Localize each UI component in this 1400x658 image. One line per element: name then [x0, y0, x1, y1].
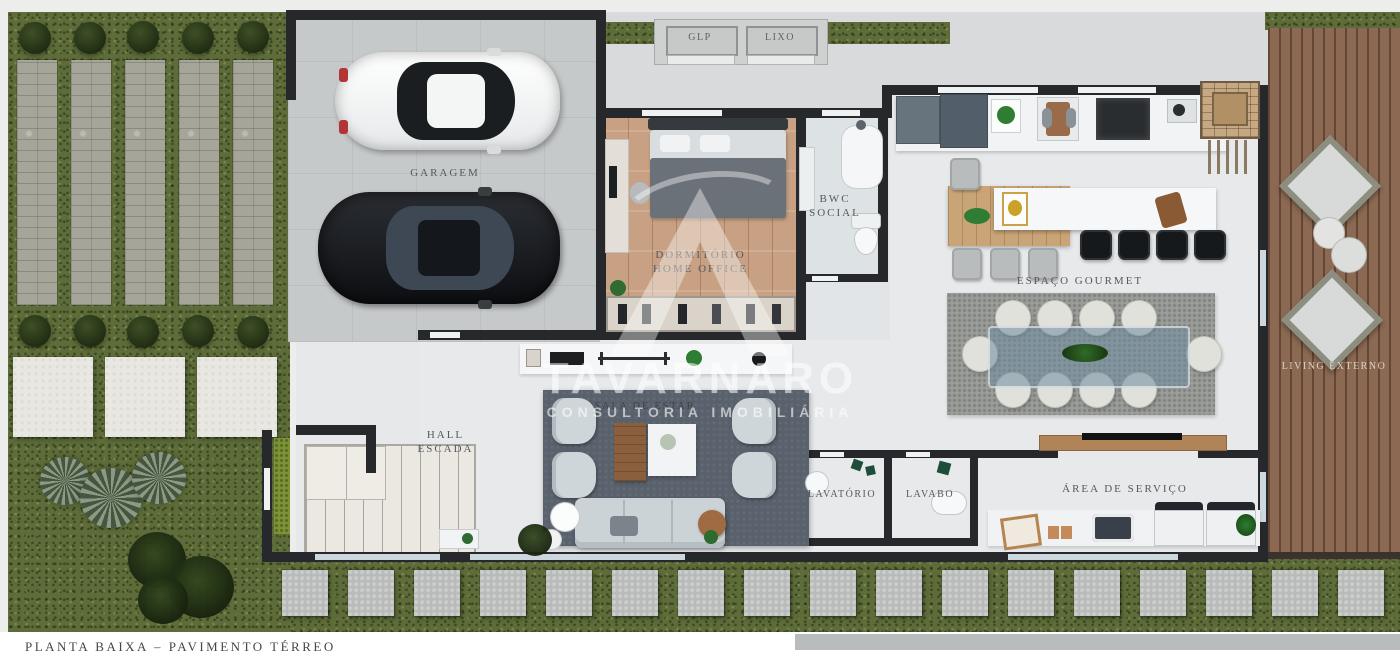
cabinet-plant — [462, 533, 473, 544]
gourmet-sliding-door — [1008, 554, 1178, 560]
car-black-mirror — [478, 187, 492, 196]
desk-monitor — [609, 166, 617, 198]
bar-stool — [1156, 230, 1188, 260]
living-sliding-door-2 — [470, 554, 685, 560]
shower-drain — [856, 120, 866, 130]
bwc-door — [812, 276, 838, 281]
bottom-gray-band — [795, 634, 1400, 650]
washer — [1155, 511, 1203, 545]
car-white-taillight — [339, 68, 348, 82]
car-white-mirror — [487, 146, 501, 154]
agave-plant — [132, 452, 186, 504]
table-chair — [952, 248, 982, 280]
wall-servico-top-b — [1198, 450, 1268, 458]
shelf-plant — [686, 350, 702, 366]
label-sala-estar: SALA DE ESTAR — [590, 400, 700, 413]
walkway-paver — [678, 570, 724, 616]
walkway-paver — [414, 570, 460, 616]
wall-lavabo-right — [970, 450, 978, 546]
walkway-paver — [810, 570, 856, 616]
table-chair — [950, 158, 980, 190]
shelf-frame — [527, 350, 540, 366]
laundry-box — [1061, 526, 1072, 539]
walkway-paver — [1206, 570, 1252, 616]
coffee-table-white — [648, 424, 696, 476]
walkway-paver — [1338, 570, 1384, 616]
garden-paver-strip — [125, 60, 165, 305]
wall-bedroom-right — [796, 108, 806, 338]
kitchen-window-2 — [1078, 87, 1156, 93]
floor-plan-canvas: GLP LIXO — [0, 0, 1400, 658]
wall-hall-stub-v — [366, 425, 376, 473]
label-living-externo: LIVING EXTERNO — [1272, 360, 1396, 373]
car-white — [335, 52, 560, 150]
bush — [237, 316, 269, 348]
coffee-table-decor — [660, 434, 676, 450]
dining-centerpiece — [1062, 344, 1108, 362]
wall-kitchen-left — [882, 85, 892, 115]
bush — [182, 315, 214, 347]
garden-square-paver — [105, 357, 185, 437]
plan-caption: PLANTA BAIXA – PAVIMENTO TÉRREO — [25, 639, 336, 655]
walkway-paver — [282, 570, 328, 616]
laundry-sink — [1092, 514, 1134, 542]
wall-lavabo-divider — [884, 450, 892, 546]
washer-lid — [1155, 502, 1203, 511]
bar-stool — [1118, 230, 1150, 260]
sala-door — [430, 332, 460, 338]
walkway-paver — [744, 570, 790, 616]
lixo-step — [748, 56, 814, 64]
tv-gourmet — [1082, 433, 1182, 440]
side-table-plant — [704, 530, 718, 544]
label-garagem: GARAGEM — [380, 166, 510, 180]
bwc-window — [822, 110, 860, 116]
laundry-plant — [1236, 514, 1256, 536]
car-black-mirror — [478, 300, 492, 309]
bush — [237, 21, 269, 53]
lixo-label: LIXO — [746, 31, 814, 44]
entry-door — [264, 468, 270, 510]
car-black-sunroof — [418, 220, 480, 276]
counter-plant — [997, 106, 1015, 124]
garden-paver-strip — [71, 60, 111, 305]
hedge-strip — [274, 438, 290, 534]
glp-label: GLP — [666, 31, 734, 44]
garden-paver-strip — [17, 60, 57, 305]
shower — [842, 126, 882, 188]
living-floor-plant — [518, 524, 552, 556]
walkway-paver — [876, 570, 922, 616]
grill-inner — [1212, 92, 1248, 126]
wardrobe — [608, 298, 794, 330]
wall-garage-right — [596, 10, 606, 338]
lavatorio-decor — [865, 465, 876, 476]
bush — [74, 22, 106, 54]
side-table-round — [551, 503, 579, 531]
garden-paver-strip — [179, 60, 219, 305]
walkway-paver — [348, 570, 394, 616]
bedroom-window — [642, 110, 722, 116]
deck-edge — [1268, 552, 1400, 559]
garden-square-paver — [197, 357, 277, 437]
bedroom-plant — [610, 280, 626, 296]
island-fruit — [1008, 200, 1022, 216]
deck-door-2 — [1260, 472, 1266, 522]
bush — [127, 316, 159, 348]
bush — [19, 315, 51, 347]
cooktop — [1096, 98, 1150, 140]
glp-step — [668, 56, 734, 64]
bush — [127, 21, 159, 53]
wall-lavabo-bottom — [798, 538, 978, 546]
walkway-paver — [1272, 570, 1318, 616]
armchair — [732, 452, 776, 498]
walkway-paver — [546, 570, 592, 616]
sink-basin — [1042, 108, 1052, 128]
bush — [19, 22, 51, 54]
walkway-paver — [1140, 570, 1186, 616]
sofa-divider — [671, 500, 673, 544]
wall-garage-top — [286, 10, 604, 20]
lavabo-door — [906, 452, 930, 457]
bar-stool — [1194, 230, 1226, 260]
car-white-roof — [427, 74, 485, 128]
armchair — [732, 398, 776, 444]
label-hall: HALL ESCADA — [408, 428, 483, 457]
wall-servico-top-a — [978, 450, 1058, 458]
shelf-bowl — [752, 352, 766, 366]
coffee-machine-dot — [1173, 104, 1185, 116]
sofa-throw — [610, 516, 638, 536]
fridge — [897, 97, 939, 143]
garden-square-paver — [13, 357, 93, 437]
label-bwc: BWC SOCIAL — [800, 192, 870, 221]
laundry-box — [1048, 526, 1059, 539]
walkway-paver — [1008, 570, 1054, 616]
laundry-frame — [1000, 514, 1042, 551]
wall-hall-stub-h — [296, 425, 376, 435]
deck-sliding-door — [1260, 250, 1266, 326]
bar-stool — [1080, 230, 1112, 260]
deck-table — [1332, 238, 1366, 272]
shelf-bench — [598, 357, 670, 360]
kitchen-window-1 — [938, 87, 1038, 93]
walkway-paver — [480, 570, 526, 616]
table-greens — [964, 208, 990, 224]
grill-utensils — [1208, 140, 1252, 174]
dryer-lid — [1207, 502, 1255, 511]
label-area-servico: ÁREA DE SERVIÇO — [1025, 482, 1225, 496]
bed — [648, 118, 788, 220]
dining-chair — [1186, 336, 1222, 372]
garden-paver-strip — [233, 60, 273, 305]
car-black — [318, 192, 560, 304]
ornamental-grass — [138, 576, 188, 624]
shelf-bench-leg — [600, 352, 603, 365]
label-espaco-gourmet: ESPAÇO GOURMET — [980, 274, 1180, 288]
wall-garage-left — [286, 10, 296, 100]
walkway-paver — [612, 570, 658, 616]
bush — [74, 315, 106, 347]
wall-sala-top — [418, 330, 806, 340]
fridge-2 — [941, 95, 987, 147]
desk-chair — [630, 182, 650, 204]
lavatorio-door — [820, 452, 844, 457]
car-white-taillight — [339, 120, 348, 134]
label-lavatorio: LAVATÓRIO — [800, 488, 884, 501]
shelf-tv — [550, 352, 584, 365]
label-lavabo: LAVABO — [892, 488, 968, 501]
sink-basin — [1066, 108, 1076, 128]
bush — [182, 22, 214, 54]
shelf-bench-leg — [664, 352, 667, 365]
walkway-paver — [1074, 570, 1120, 616]
walkway-paver — [942, 570, 988, 616]
armchair — [552, 452, 596, 498]
car-white-mirror — [487, 48, 501, 56]
label-dormitorio: DORMITÓRIO HOME OFFICE — [628, 248, 773, 277]
living-sliding-door — [315, 554, 440, 560]
coffee-table-wood — [614, 423, 646, 481]
